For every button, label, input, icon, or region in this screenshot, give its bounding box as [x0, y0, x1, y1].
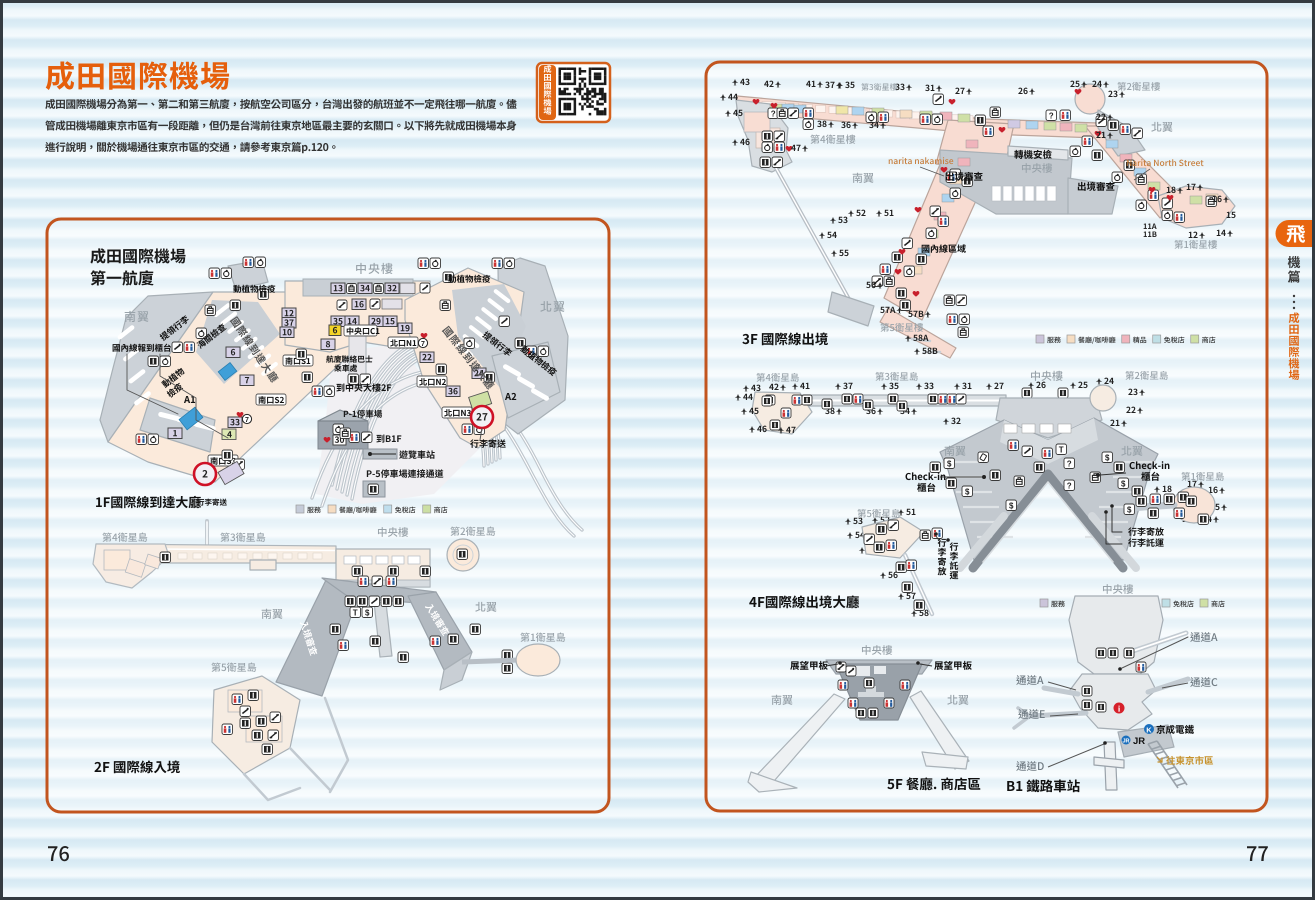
svg-text:T: T: [1059, 445, 1064, 454]
svg-text:JR: JR: [1122, 739, 1129, 745]
svg-text:7: 7: [245, 417, 249, 424]
svg-text:?: ?: [1049, 111, 1054, 120]
svg-text:$: $: [365, 608, 370, 617]
svg-text:?: ?: [1067, 459, 1072, 468]
svg-text:JR: JR: [1133, 736, 1145, 747]
svg-text:$: $: [1121, 479, 1126, 488]
svg-text:?: ?: [771, 109, 776, 118]
svg-text:7: 7: [421, 341, 425, 348]
svg-text:$: $: [947, 459, 952, 468]
svg-text:K: K: [1146, 726, 1152, 735]
svg-text:T: T: [353, 608, 358, 617]
svg-text:$: $: [965, 487, 970, 496]
svg-text:$: $: [1009, 501, 1014, 510]
svg-text:$: $: [1127, 505, 1132, 514]
svg-text:?: ?: [1067, 481, 1072, 490]
svg-text:$: $: [1105, 453, 1110, 462]
